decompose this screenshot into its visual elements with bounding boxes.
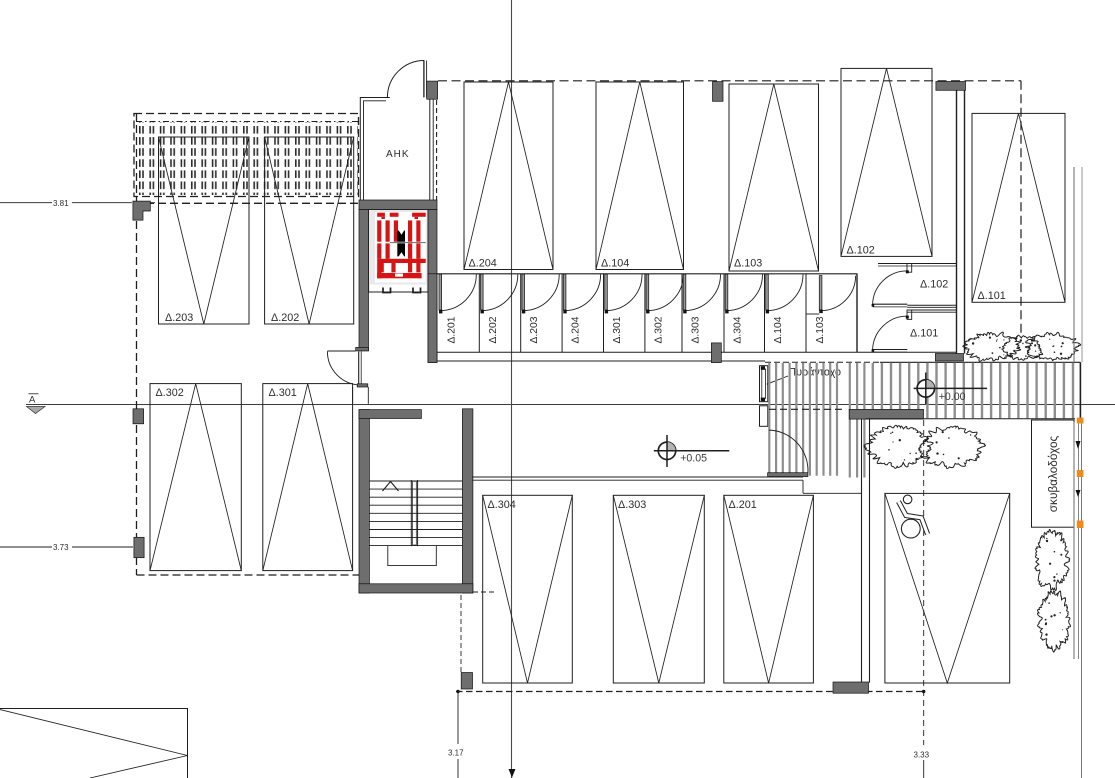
svg-text:3.73: 3.73 <box>53 543 69 552</box>
svg-text:σκυβαλοδόχος: σκυβαλοδόχος <box>1046 435 1060 512</box>
svg-text:Δ.204: Δ.204 <box>571 316 582 343</box>
svg-text:Δ.101: Δ.101 <box>978 290 1006 302</box>
svg-text:+0.00: +0.00 <box>939 391 966 403</box>
svg-text:Δ.103: Δ.103 <box>734 258 762 270</box>
svg-text:Δ.203: Δ.203 <box>529 316 540 343</box>
svg-text:A: A <box>29 395 36 406</box>
svg-text:Δ.303: Δ.303 <box>691 316 702 343</box>
svg-text:Δ.302: Δ.302 <box>653 316 664 343</box>
svg-text:Δ.202: Δ.202 <box>271 312 299 324</box>
svg-text:Δ.304: Δ.304 <box>733 316 744 343</box>
svg-text:Δ.102: Δ.102 <box>847 245 875 257</box>
svg-text:Δ.204: Δ.204 <box>469 258 497 270</box>
svg-text:Δ.201: Δ.201 <box>446 316 457 343</box>
svg-text:3.17: 3.17 <box>448 749 464 758</box>
svg-text:Δ.102: Δ.102 <box>920 279 948 291</box>
svg-text:Δ.202: Δ.202 <box>488 316 499 343</box>
svg-text:Δ.301: Δ.301 <box>612 316 623 343</box>
svg-text:AHK: AHK <box>386 149 410 160</box>
svg-text:Δ.103: Δ.103 <box>815 316 826 343</box>
svg-text:Δ.301: Δ.301 <box>269 387 297 399</box>
svg-text:Δ.201: Δ.201 <box>729 499 757 511</box>
svg-text:Δ.104: Δ.104 <box>601 258 629 270</box>
svg-text:Δ.101: Δ.101 <box>910 328 938 340</box>
svg-text:+0.05: +0.05 <box>680 453 707 465</box>
svg-text:Δ.104: Δ.104 <box>773 316 784 343</box>
svg-text:Δ.303: Δ.303 <box>618 499 646 511</box>
svg-text:3.33: 3.33 <box>914 751 930 760</box>
svg-text:Δ.203: Δ.203 <box>165 312 193 324</box>
svg-text:Δ.304: Δ.304 <box>488 499 516 511</box>
svg-text:Δ.302: Δ.302 <box>156 387 184 399</box>
svg-text:3.81: 3.81 <box>53 199 69 208</box>
